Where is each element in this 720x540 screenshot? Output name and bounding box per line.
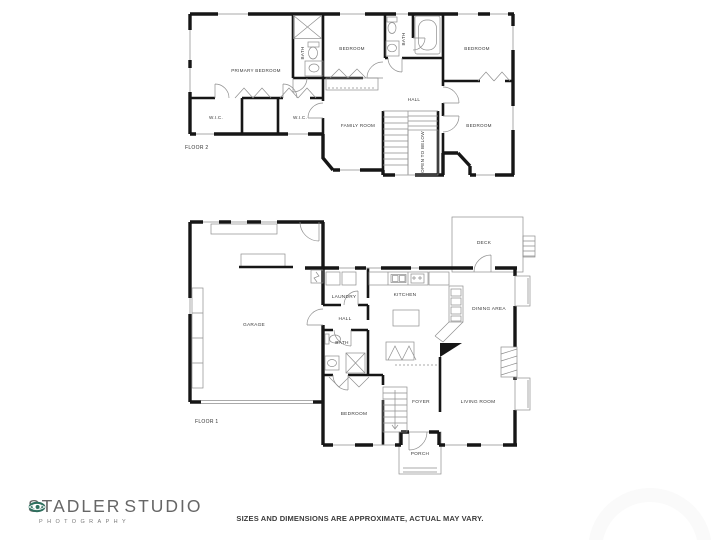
room-label-primary-bedroom: PRIMARY BEDROOM — [231, 68, 281, 73]
room-label-family-room: FAMILY ROOM — [341, 123, 375, 128]
room-label-kitchen: KITCHEN — [394, 292, 417, 298]
room-label-bath-primary: BATH — [300, 47, 305, 60]
floor2-stairs — [383, 111, 438, 175]
room-label-porch: PORCH — [411, 451, 430, 457]
room-label-wic-right: W.I.C. — [293, 115, 307, 120]
room-label-wic-left: W.I.C. — [209, 115, 223, 120]
room-label-deck: DECK — [477, 240, 492, 246]
room-label-laundry: LAUNDRY — [332, 294, 357, 300]
floor1-labels: GARAGE LAUNDRY KITCHEN DECK DINING AREA … — [195, 240, 506, 457]
room-label-living-room: LIVING ROOM — [461, 399, 496, 405]
room-label-garage: GARAGE — [243, 322, 265, 328]
floor2-plan: PRIMARY BEDROOM BATH BEDROOM BATH BEDROO… — [180, 8, 520, 188]
floor1-bay-windows — [515, 276, 530, 410]
floor1-bath-fixtures — [325, 334, 365, 373]
faint-watermark-circle — [588, 488, 712, 540]
floor1-plan: GARAGE LAUNDRY KITCHEN DECK DINING AREA … — [183, 210, 543, 480]
room-label-foyer: FOYER — [412, 399, 430, 405]
floor2-label: FLOOR 2 — [185, 145, 209, 151]
room-label-bath-hall: BATH — [401, 33, 406, 46]
floor2-closets — [235, 69, 510, 98]
room-label-bedroom-bottom-right: BEDROOM — [466, 123, 492, 128]
room-label-bedroom-top-right: BEDROOM — [464, 46, 490, 51]
room-label-hall: HALL — [408, 97, 421, 102]
floor1-kitchen-fixtures — [369, 272, 463, 342]
kitchen-peninsula — [435, 322, 463, 342]
floor1-foyer-closet — [386, 342, 416, 360]
floor2-bath-fixtures — [294, 16, 441, 77]
room-label-bath: BATH — [335, 340, 349, 346]
room-label-hall: HALL — [339, 316, 352, 322]
floor1-deck — [452, 217, 535, 272]
floor1-laundry-fixtures — [311, 270, 356, 285]
floor1-label: FLOOR 1 — [195, 419, 219, 425]
stair-header-wall — [440, 343, 462, 357]
room-label-dining-area: DINING AREA — [472, 306, 506, 312]
floor2-doors — [215, 38, 459, 132]
eye-icon — [28, 501, 46, 513]
floor1-stairs — [383, 387, 407, 432]
floor-plan-page: PRIMARY BEDROOM BATH BEDROOM BATH BEDROO… — [0, 0, 720, 540]
kitchen-island — [393, 310, 419, 326]
room-label-bedroom-top-middle: BEDROOM — [339, 46, 365, 51]
room-label-bedroom: BEDROOM — [341, 411, 368, 417]
room-label-open-to-below: OPEN TO BELOW — [420, 131, 425, 173]
refrigerator — [429, 272, 449, 285]
floor1-fireplace — [501, 347, 517, 377]
floor1-garage-fixtures — [192, 222, 319, 388]
